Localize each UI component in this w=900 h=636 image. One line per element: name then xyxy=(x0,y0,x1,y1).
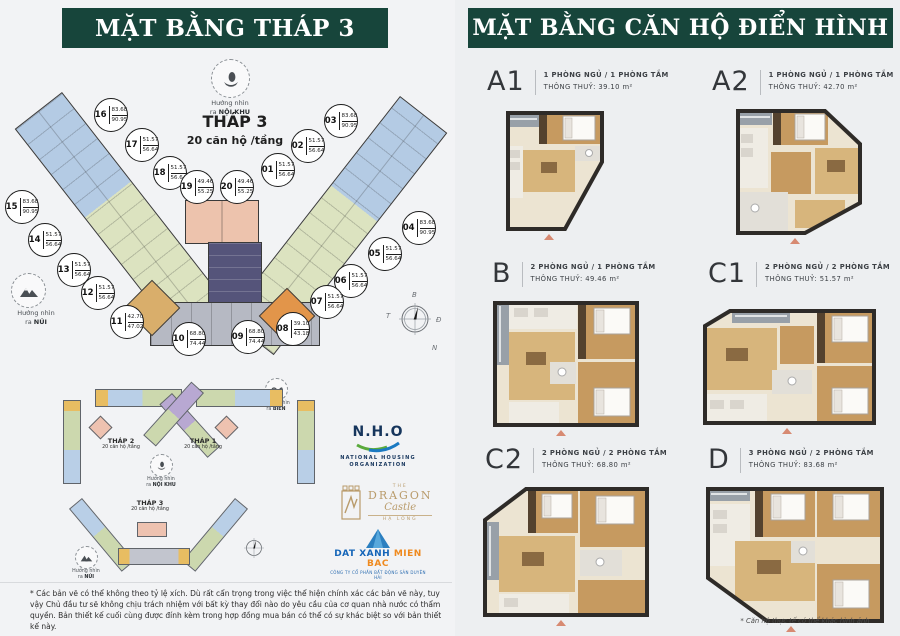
floorplan-c1 xyxy=(702,308,877,426)
datxanh-triangle-icon xyxy=(365,528,391,549)
right-title-text: MẶT BẰNG CĂN HỘ ĐIỂN HÌNH xyxy=(472,15,888,41)
view-noikhu-line1: Hướng nhìn xyxy=(211,99,248,107)
mini-tower3-bottombar xyxy=(118,548,190,565)
view-nui-line1: Hướng nhìn xyxy=(17,309,54,317)
dragon-crest-icon xyxy=(340,485,362,521)
datxanh-logo: DAT XANH MIEN BAC CÔNG TY CỔ PHẦN BẤT ĐỘ… xyxy=(328,528,428,580)
mini-tower3-center xyxy=(137,522,167,537)
mini-view-noikhu-icon xyxy=(150,454,173,477)
apartment-header-c1: C1 2 PHÒNG NGỦ / 2 PHÒNG TẮMTHÔNG THUỶ: … xyxy=(708,260,890,287)
mountain-icon xyxy=(80,553,93,562)
entry-arrow-c1 xyxy=(782,428,792,434)
entry-arrow-a2 xyxy=(790,238,800,244)
dragon-castle-text: THE DRAGON Castle HẠ LONG xyxy=(368,484,432,522)
view-noikhu-icon xyxy=(211,59,250,98)
floorplan-a1 xyxy=(505,110,605,232)
unit-circle-05: 0551.5756.64 xyxy=(368,237,402,271)
mini-view-nui-icon xyxy=(75,546,98,569)
tower-core-block xyxy=(208,242,262,306)
dragon-castle-logo: THE DRAGON Castle HẠ LONG xyxy=(340,484,440,522)
brochure-page: MẶT BẰNG THÁP 3 MẶT BẰNG CĂN HỘ ĐIỂN HÌN… xyxy=(0,0,900,636)
unit-circle-15: 1583.6890.95 xyxy=(5,190,39,224)
apartment-header-a2: A2 1 PHÒNG NGỦ / 1 PHÒNG TẮMTHÔNG THUỶ: … xyxy=(712,68,894,95)
left-title-text: MẶT BẰNG THÁP 3 xyxy=(95,15,355,42)
disclaimer-text: * Các bản vẽ có thể không theo tỷ lệ xíc… xyxy=(30,589,442,633)
compass-icon xyxy=(399,303,431,335)
compass-south-label: N xyxy=(432,344,437,352)
left-panel-title: MẶT BẰNG THÁP 3 xyxy=(62,8,388,48)
compass-north-label: B xyxy=(412,291,417,299)
mini-view-noikhu-label: Hướng nhìn ra NỘI KHU xyxy=(130,477,192,490)
entry-arrow-d xyxy=(786,626,796,632)
unit-circle-13: 1351.5756.64 xyxy=(57,253,91,287)
tower-subtitle-text: 20 căn hộ /tầng xyxy=(187,134,283,147)
unit-circle-10: 1068.8074.44 xyxy=(172,322,206,356)
compass-west-label: T xyxy=(386,312,390,320)
nho-logo-text: N.H.O xyxy=(330,424,426,440)
entry-arrow-b xyxy=(556,430,566,436)
mini-tower1-topbar xyxy=(196,389,283,407)
unit-circle-03: 0383.6890.95 xyxy=(324,104,358,138)
unit-circle-20: 2049.4655.25 xyxy=(220,170,254,204)
unit-circle-01: 0151.5756.64 xyxy=(261,153,295,187)
tower-center-units-19-20 xyxy=(185,200,259,244)
entry-arrow-c2 xyxy=(556,620,566,626)
apartment-header-b: B 2 PHÒNG NGỦ / 1 PHÒNG TẮMTHÔNG THUỶ: 4… xyxy=(492,260,656,287)
right-footnote: * Căn hộ thực tế có thể khác hình ảnh xyxy=(720,617,890,625)
mini-tower1-rightarm xyxy=(297,400,315,484)
floorplan-b xyxy=(492,300,640,428)
view-noikhu-prefix: ra xyxy=(210,108,219,116)
unit-circle-14: 1451.5756.64 xyxy=(28,223,62,257)
mini-tower2-leftarm xyxy=(63,400,81,484)
unit-circle-19: 1949.4655.25 xyxy=(180,170,214,204)
mini-tower2-label: THÁP 2 20 căn hộ /tầng xyxy=(86,437,156,450)
view-noikhu-label: Hướng nhìn ra NỘI KHU xyxy=(190,99,270,117)
mini-view-nui-label: Hướng nhìn ra NÚI xyxy=(55,569,117,582)
mini-tower1-diamond xyxy=(214,415,238,439)
mini-tower3-label: THÁP 3 20 căn hộ /tầng xyxy=(115,499,185,512)
datxanh-logo-text: DAT XANH MIEN BAC xyxy=(328,549,428,569)
unit-circle-07: 0751.5756.64 xyxy=(310,285,344,319)
mini-tower2-diamond xyxy=(88,415,112,439)
unit-circle-17: 1751.5756.64 xyxy=(125,128,159,162)
right-panel-title: MẶT BẰNG CĂN HỘ ĐIỂN HÌNH xyxy=(468,8,893,48)
unit-circle-02: 0251.5756.64 xyxy=(291,129,325,163)
footer-divider xyxy=(0,582,452,583)
tower-subtitle: 20 căn hộ /tầng xyxy=(160,134,310,147)
courtyard-icon xyxy=(221,69,241,89)
view-nui-prefix: ra xyxy=(25,318,34,326)
nho-logo: N.H.O NATIONAL HOUSING ORGANIZATION xyxy=(330,424,426,468)
apartment-header-c2: C2 2 PHÒNG NGỦ / 2 PHÒNG TẮMTHÔNG THUỶ: … xyxy=(485,446,667,473)
floorplan-d xyxy=(705,486,885,624)
unit-circle-09: 0968.8074.44 xyxy=(231,320,265,354)
nho-swoosh-icon xyxy=(355,441,401,453)
view-nui-label: Hướng nhìn ra NÚI xyxy=(0,309,72,327)
floorplan-c2 xyxy=(482,486,650,618)
compass-east-label: Đ xyxy=(436,316,441,324)
unit-circle-11: 1142.7047.02 xyxy=(110,305,144,339)
mini-tower3-rightwing xyxy=(182,498,248,572)
entry-arrow-a1 xyxy=(544,234,554,240)
view-noikhu-line2: NỘI KHU xyxy=(219,108,250,116)
mini-tower1-label: THÁP 1 20 căn hộ /tầng xyxy=(168,437,238,450)
unit-circle-16: 1683.6890.95 xyxy=(94,98,128,132)
floorplan-a2 xyxy=(735,108,863,236)
view-nui-line2: NÚI xyxy=(34,318,47,326)
mini-compass-icon xyxy=(244,538,264,558)
courtyard-icon xyxy=(156,460,167,471)
apartment-header-d: D 3 PHÒNG NGỦ / 2 PHÒNG TẮMTHÔNG THUỶ: 8… xyxy=(708,446,874,473)
unit-circle-08: 0839.1043.18 xyxy=(276,312,310,346)
mountain-icon xyxy=(19,284,39,298)
view-nui-icon xyxy=(11,273,46,308)
unit-circle-04: 0483.6890.95 xyxy=(402,211,436,245)
apartment-header-a1: A1 1 PHÒNG NGỦ / 1 PHÒNG TẮMTHÔNG THUỶ: … xyxy=(487,68,669,95)
